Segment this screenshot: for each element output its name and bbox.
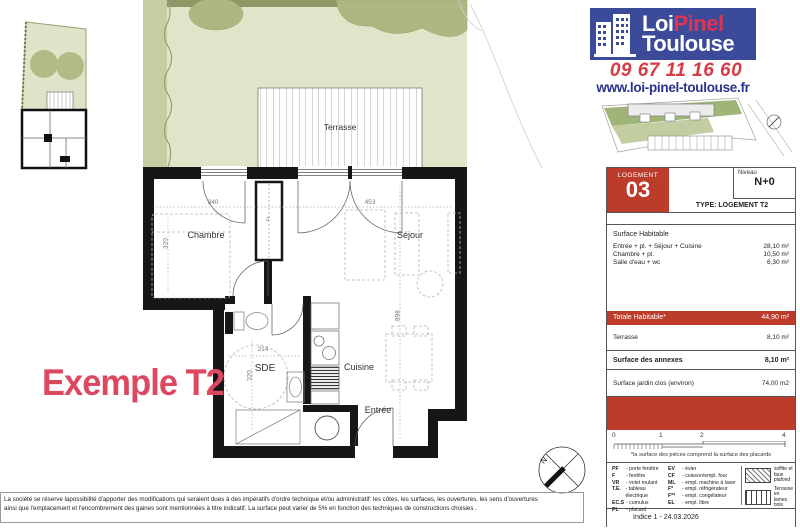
row-value: 6,30 m² — [767, 259, 789, 267]
dim-sde-width: 214 — [246, 346, 280, 353]
dim-chambre-width: 340 — [196, 199, 230, 206]
site-plan-illustration — [588, 96, 800, 164]
legend-item: VR- volet roulant — [612, 480, 668, 487]
swatch-label: soffite et faux plafond — [774, 467, 793, 484]
building-icon — [594, 10, 638, 58]
disclaimer-line1: La société se réserve lapossibilité d'ap… — [4, 495, 580, 504]
legend-item: ML- empl. machine à laver — [668, 480, 741, 487]
legend-item: F**- empl. congélateur — [668, 493, 741, 500]
row-label: Entrée + pl. + Séjour + Cuisine — [613, 243, 702, 251]
row-value: 28,10 m² — [763, 243, 789, 251]
bathroom-fixtures — [234, 312, 304, 444]
terrace-label: Terrasse — [300, 122, 380, 132]
legend-item: CF- cuisson/empl. four — [668, 473, 741, 480]
logement-badge: LOGEMENT 03 — [607, 168, 669, 212]
row-label: Chambre + pl. — [613, 251, 654, 259]
logo-text-toulouse: Toulouse — [642, 34, 734, 54]
scale-tick-4: 4 — [782, 432, 786, 439]
scale-ruler: 0 1 2 4 — [607, 430, 795, 452]
jardin-row: Surface jardin clos (environ) 74,00 m2 — [607, 370, 795, 396]
placard-label: PL — [265, 216, 270, 222]
surfaces-table: Surface Habitable Entrée + pl. + Séjour … — [607, 224, 795, 397]
unit-info-card: LOGEMENT 03 Niveau N+0 TYPE: LOGEMENT T2… — [606, 167, 796, 527]
row-value: 10,50 m² — [763, 251, 789, 259]
table-row: Entrée + pl. + Séjour + Cuisine 28,10 m² — [613, 243, 789, 251]
logo: LoiPinel Toulouse — [590, 8, 756, 60]
windows — [201, 166, 402, 179]
terrasse-row: Terrasse 8,10 m² — [607, 325, 795, 351]
annexes-value: 8,10 m² — [765, 357, 789, 364]
wood-swatch — [745, 490, 771, 505]
entree-label: Entrée — [350, 405, 406, 415]
card-header: LOGEMENT 03 Niveau N+0 TYPE: LOGEMENT T2 — [607, 167, 795, 213]
legend-item: PF- porte fenêtre — [612, 466, 668, 473]
annexes-row: Surface des annexes 8,10 m² — [607, 351, 795, 370]
dim-sejour-width: 453 — [353, 199, 387, 206]
dim-chambre-height: 320 — [163, 231, 170, 257]
scale-ruler-graphic — [607, 441, 795, 451]
terrasse-label: Terrasse — [613, 334, 638, 341]
disclaimer-line2: ainsi que l'emplacement et l'encombremen… — [4, 504, 580, 513]
totale-value: 44,90 m² — [761, 311, 789, 325]
legend-item: T.E.- tableau électrique — [612, 486, 668, 500]
row-label: Salle d'eau + wc — [613, 259, 660, 267]
swatch-label: Terrasse en lames bois — [774, 487, 793, 509]
legend-item: PL- placard — [612, 507, 668, 514]
scale-tick-1: 1 — [659, 432, 663, 439]
dim-sde-height: 320 — [247, 363, 254, 389]
table-row: Chambre + pl. 10,50 m² — [613, 251, 789, 259]
logement-number: 03 — [607, 179, 669, 201]
legend-item: EC.S- cumulus — [612, 500, 668, 507]
surface-habitable-title: Surface Habitable — [613, 231, 789, 238]
legend-swatch-item: soffite et faux plafond — [745, 467, 793, 484]
jardin-label: Surface jardin clos (environ) — [613, 380, 694, 387]
disclaimer: La société se réserve lapossibilité d'ap… — [0, 492, 584, 523]
table-row: Salle d'eau + wc 6,30 m² — [613, 259, 789, 267]
legend-swatch-item: Terrasse en lames bois — [745, 487, 793, 509]
type-line: TYPE: LOGEMENT T2 — [669, 199, 795, 212]
legend-item: F- fenêtre — [612, 473, 668, 480]
legend-item: F*- empl. réfrigérateur — [668, 486, 741, 493]
niveau-value: N+0 — [738, 176, 791, 188]
annexes-label: Surface des annexes — [613, 357, 683, 364]
dim-sejour-height: 898 — [395, 303, 402, 329]
niveau-cell: Niveau N+0 — [733, 168, 795, 199]
legend: PF- porte fenêtre F- fenêtre VR- volet r… — [607, 462, 795, 509]
cuisine-label: Cuisine — [326, 362, 392, 372]
floor-plan-page: { "colors": { "brand_blue": "#3c4a9a", "… — [0, 0, 800, 529]
totale-habitable-row: Totale Habitable* 44,90 m² — [607, 311, 795, 325]
jardin-value: 74,00 m2 — [762, 380, 789, 387]
red-band — [607, 397, 795, 430]
scale-tick-2: 2 — [700, 432, 704, 439]
website-link[interactable]: www.loi-pinel-toulouse.fr — [584, 80, 762, 95]
mini-site-map — [14, 16, 96, 172]
totale-label: Totale Habitable* — [613, 311, 666, 325]
example-type-label: Exemple T2 — [42, 362, 224, 404]
surface-footnote: *la surface des pièces comprend la surfa… — [607, 452, 795, 462]
walls — [143, 167, 467, 458]
hatch-swatch — [745, 468, 771, 483]
sejour-label: Séjour — [375, 230, 445, 240]
terrasse-value: 8,10 m² — [767, 334, 789, 341]
chambre-label: Chambre — [170, 230, 242, 240]
legend-item: EL- empl. libre — [668, 500, 741, 507]
legend-item: EV- évier — [668, 466, 741, 473]
scale-tick-0: 0 — [612, 432, 616, 439]
phone-number: 09 67 11 16 60 — [596, 60, 756, 82]
